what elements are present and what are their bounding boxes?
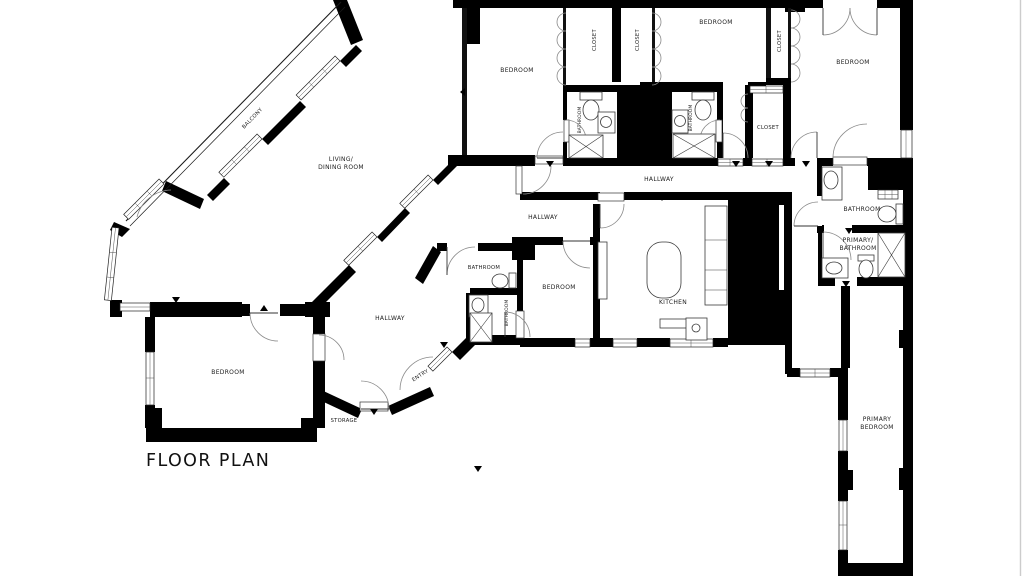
room-label-bathroom-mid: BATHROOM: [468, 265, 500, 271]
shower-icon: [470, 313, 492, 342]
room-label-bedroom-bottom-left: BEDROOM: [211, 369, 244, 376]
shaft-slit: [779, 205, 784, 290]
room-label-balcony: BALCONY: [241, 107, 264, 131]
sink-icon: [822, 167, 842, 200]
floor-plan-drawing: BALCONY LIVING/ DINING ROOM BEDROOM CLOS…: [0, 0, 1024, 576]
kitchen-sink-icon: [660, 318, 707, 340]
room-label-closet-c: CLOSET: [777, 29, 783, 51]
sink-icon: [598, 112, 615, 133]
room-label-bedroom-top-mid: BEDROOM: [699, 19, 732, 26]
shower-icon: [673, 134, 715, 158]
room-label-bathroom-small: BATHROOM: [504, 300, 510, 327]
room-label-kitchen: KITCHEN: [659, 299, 687, 306]
room-label-primary-bedroom-1: PRIMARY: [863, 416, 891, 423]
toilet-icon: [858, 255, 874, 278]
room-label-closet-d: CLOSET: [757, 125, 779, 131]
sink-icon: [672, 110, 688, 133]
toilet-icon: [878, 204, 903, 224]
room-label-primary-bathroom-1: PRIMARY/: [843, 237, 874, 244]
room-label-storage: STORAGE: [331, 418, 358, 424]
room-label-bathroom-a: BATHROOM: [577, 107, 583, 134]
shower-icon: [569, 135, 603, 158]
kitchen-counter: [705, 206, 727, 305]
room-label-hallway-left: HALLWAY: [528, 214, 558, 221]
kitchen-island: [647, 242, 681, 298]
room-label-bedroom-top-left: BEDROOM: [500, 67, 533, 74]
room-label-living-dining-2: DINING ROOM: [318, 164, 364, 171]
room-label-living-dining-1: LIVING/: [329, 156, 354, 163]
page-title: FLOOR PLAN: [146, 451, 270, 471]
room-label-closet-b: CLOSET: [635, 28, 641, 50]
kitchen-counter: [598, 242, 607, 299]
room-label-primary-bathroom-2: BATHROOM: [839, 245, 876, 252]
room-label-bedroom-top-right: BEDROOM: [836, 59, 869, 66]
room-label-hallway-diag: HALLWAY: [375, 315, 405, 322]
room-label-closet-a: CLOSET: [592, 28, 598, 50]
room-label-bedroom-mid: BEDROOM: [542, 284, 575, 291]
room-label-bathroom-b: BATHROOM: [688, 105, 694, 132]
room-label-entry: ENTRY: [411, 368, 430, 383]
floor-plan-sheet: BALCONY LIVING/ DINING ROOM BEDROOM CLOS…: [0, 0, 1024, 576]
shower-icon: [878, 233, 905, 277]
toilet-icon: [492, 273, 516, 288]
toilet-icon: [692, 92, 714, 120]
sink-icon: [822, 258, 848, 278]
room-label-hallway-main: HALLWAY: [644, 176, 674, 183]
room-label-bathroom-right: BATHROOM: [843, 206, 880, 213]
room-label-primary-bedroom-2: BEDROOM: [860, 424, 893, 431]
door-markers: [172, 71, 907, 472]
